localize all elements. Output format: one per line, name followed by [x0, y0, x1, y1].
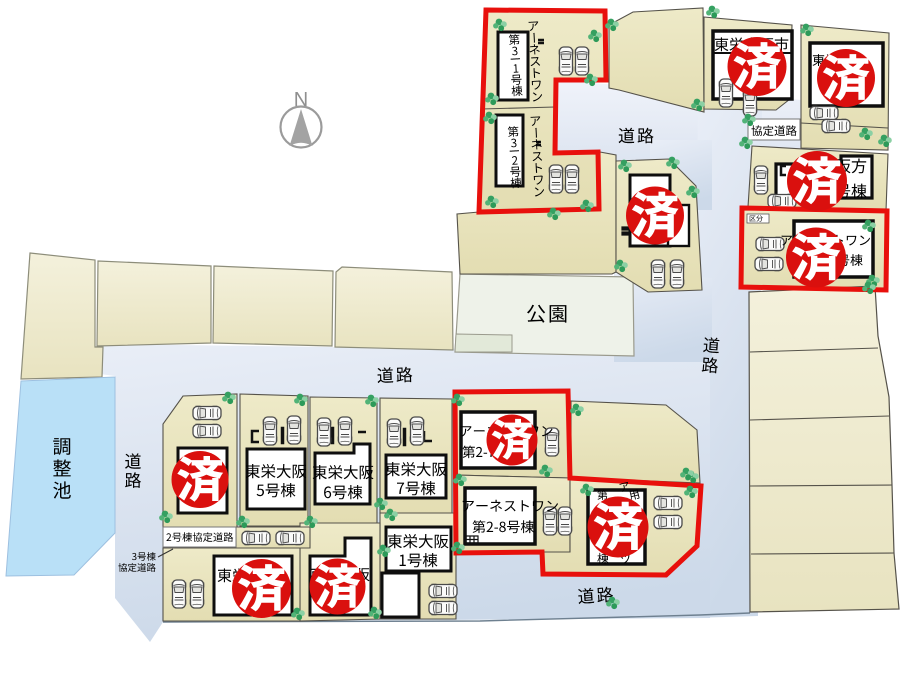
svg-text:N: N	[294, 89, 308, 111]
